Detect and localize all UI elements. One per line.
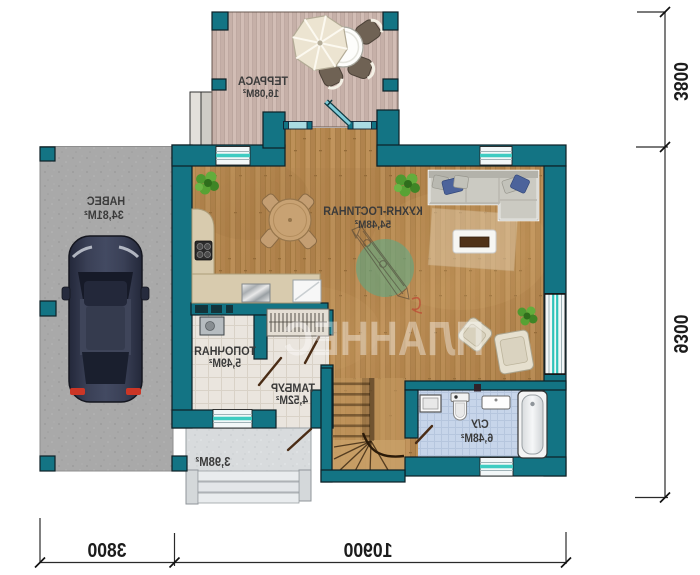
svg-text:34,81М²: 34,81М² — [84, 210, 124, 223]
svg-text:ТОПОЧНАЯ: ТОПОЧНАЯ — [194, 346, 256, 359]
svg-text:16,08М²: 16,08М² — [242, 89, 279, 101]
svg-text:КУХНЯ-ГОСТИНАЯ: КУХНЯ-ГОСТИНАЯ — [323, 206, 422, 219]
svg-text:3,98М²: 3,98М² — [195, 454, 230, 469]
svg-text:10900: 10900 — [344, 539, 393, 561]
svg-text:4,52М²: 4,52М² — [276, 395, 309, 408]
svg-text:ТАМБУР: ТАМБУР — [271, 383, 315, 396]
svg-text:ПЛАННЕС: ПЛАННЕС — [284, 313, 485, 366]
svg-text:НАВЕС: НАВЕС — [87, 196, 125, 209]
svg-text:54,48М²: 54,48М² — [354, 220, 391, 232]
svg-text:6,48М²: 6,48М² — [461, 433, 494, 446]
svg-text:9300: 9300 — [670, 314, 692, 353]
svg-text:5,49М²: 5,49М² — [209, 358, 242, 371]
svg-text:С/У: С/У — [470, 419, 488, 432]
svg-text:ТЕРРАСА: ТЕРРАСА — [238, 76, 288, 89]
svg-text:3800: 3800 — [670, 62, 692, 101]
svg-text:3800: 3800 — [87, 539, 126, 561]
